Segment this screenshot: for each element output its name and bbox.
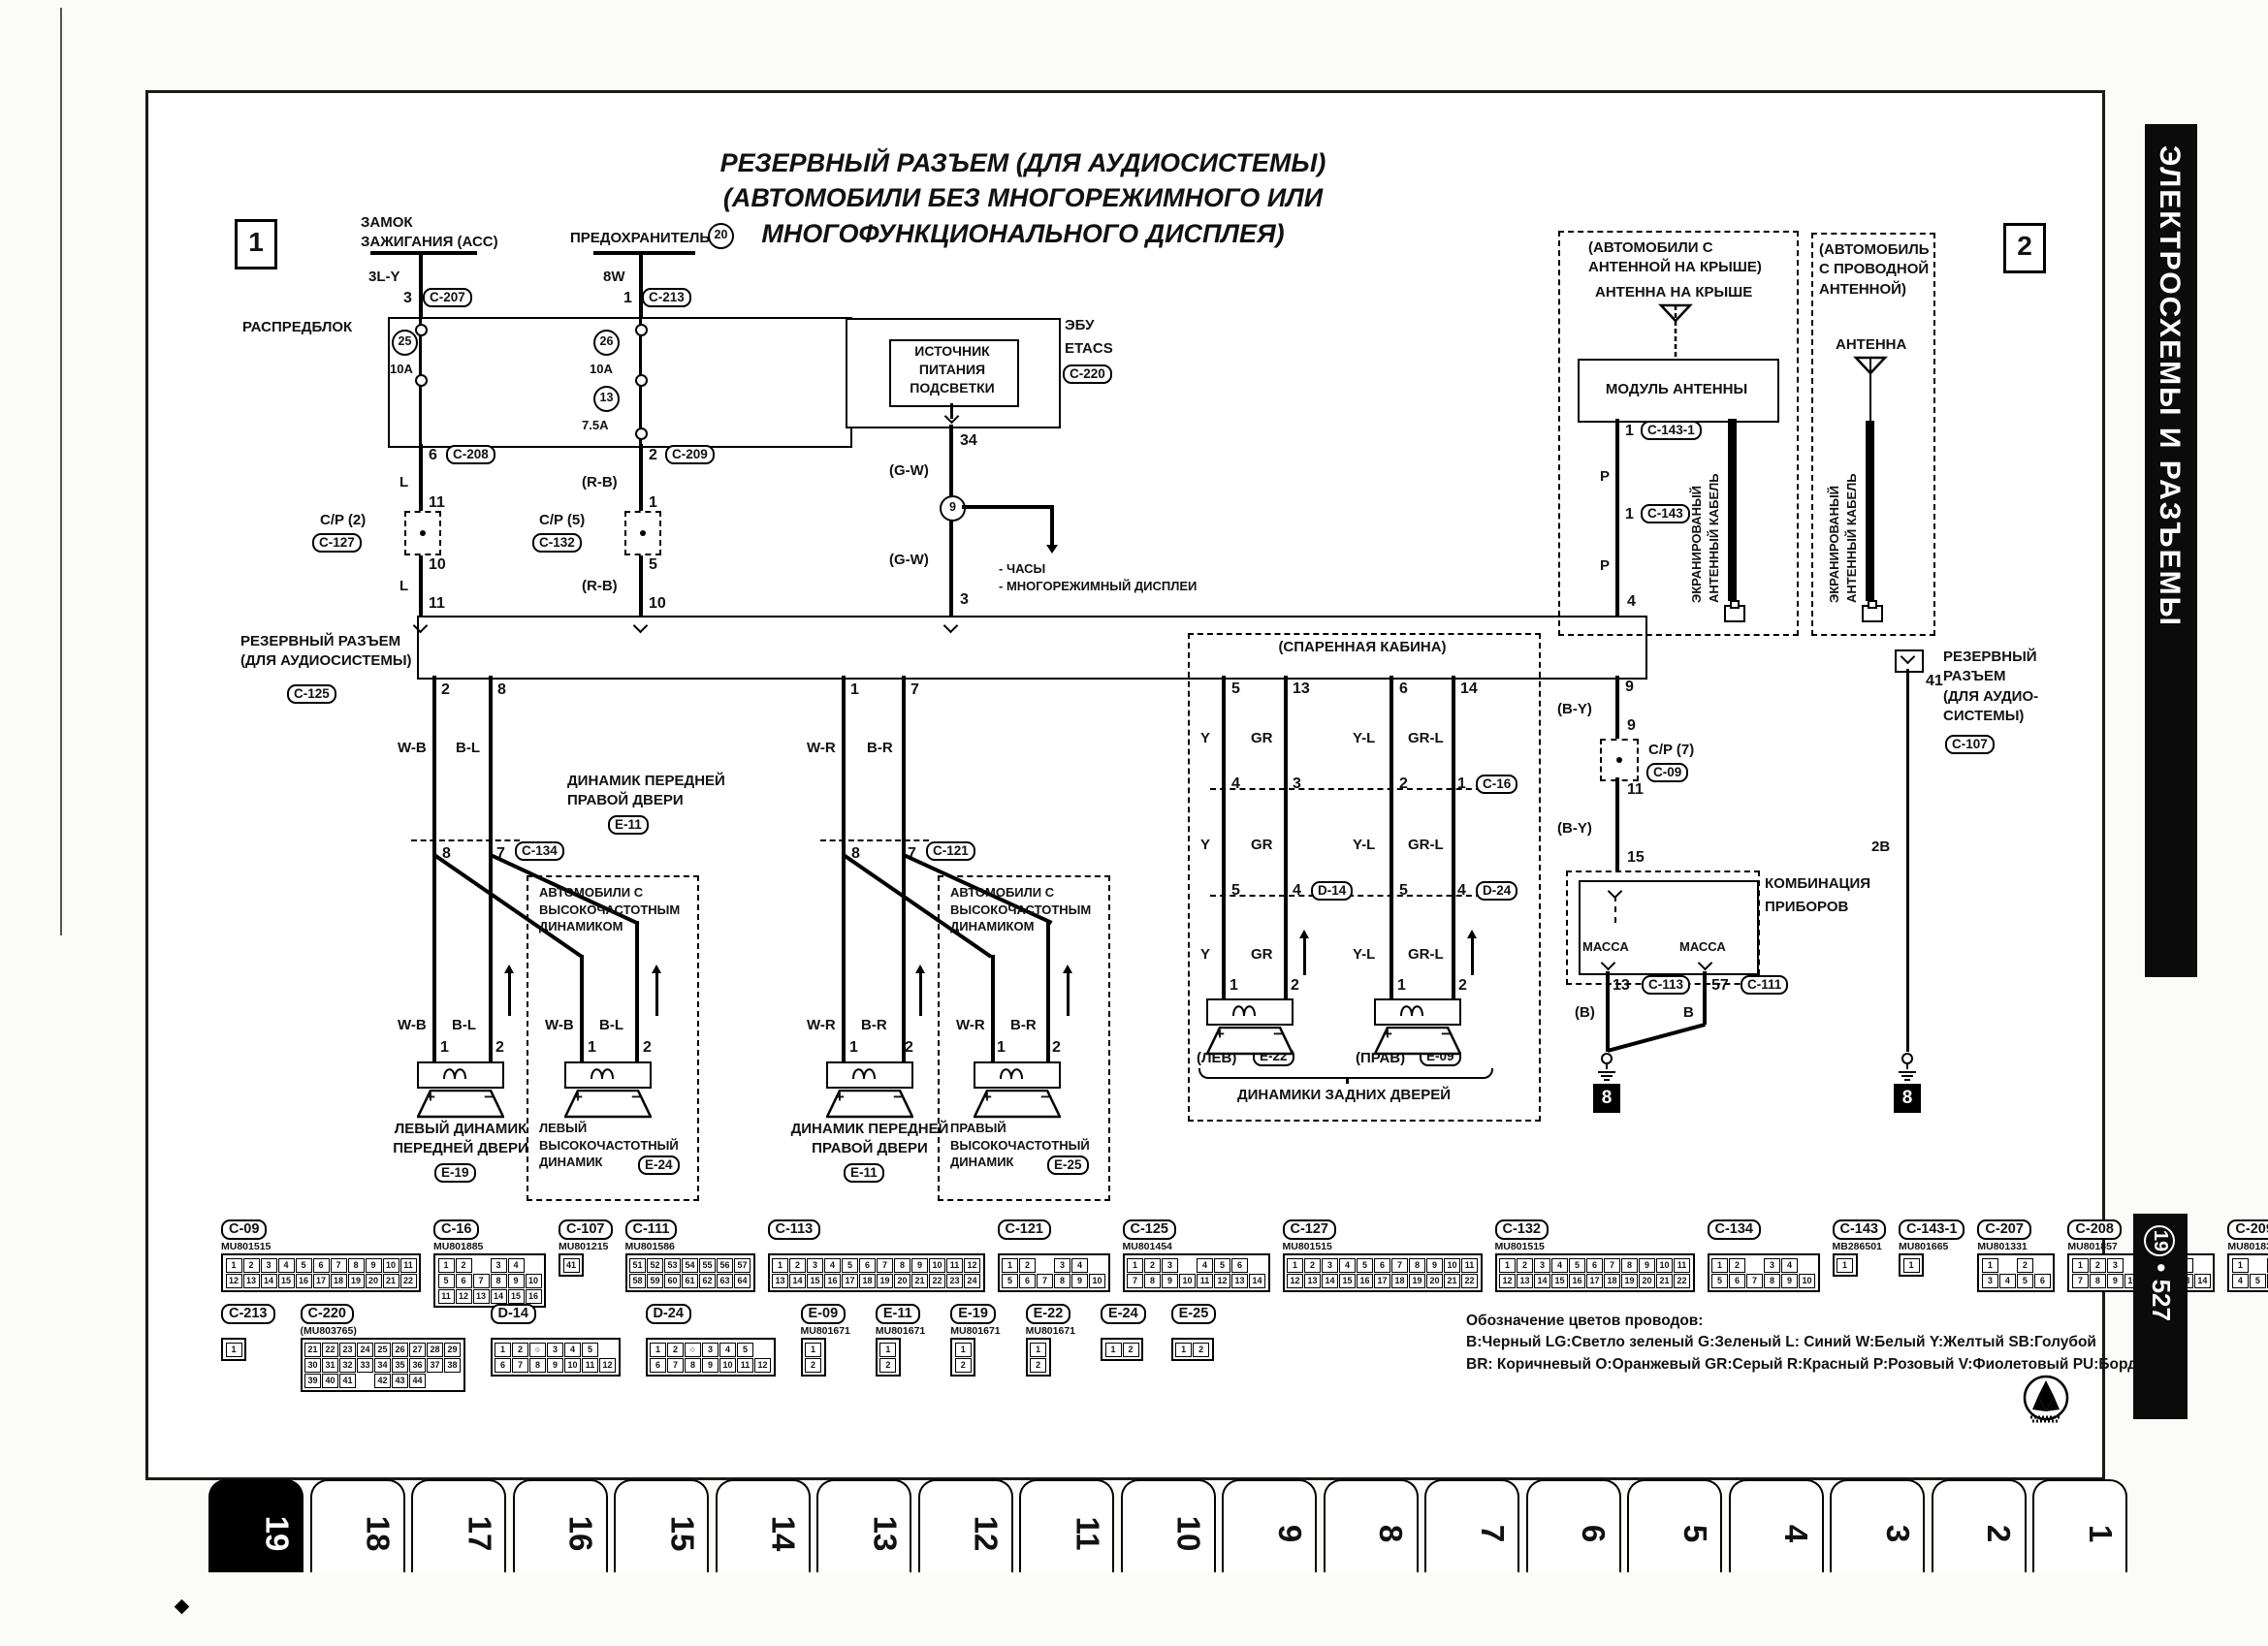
page-tabs-bar: 19181716151413121110987654321 [0, 0, 2268, 1646]
page-tab-11: 11 [1019, 1479, 1114, 1572]
page-tab-13: 13 [816, 1479, 911, 1572]
page-tab-5: 5 [1627, 1479, 1722, 1572]
page-tab-17: 17 [411, 1479, 506, 1572]
page-tab-label: 12 [927, 1516, 1005, 1552]
page-tab-label: 13 [825, 1516, 903, 1552]
page-tab-1: 1 [2032, 1479, 2127, 1572]
page-tab-14: 14 [716, 1479, 811, 1572]
page-tab-18: 18 [310, 1479, 405, 1572]
page-tab-2: 2 [1932, 1479, 2027, 1572]
page-tab-label: 19 [217, 1516, 295, 1552]
page-tab-label: 15 [623, 1516, 700, 1552]
page-tab-label: 6 [1534, 1525, 1612, 1542]
page-tab-4: 4 [1729, 1479, 1824, 1572]
page-tab-label: 16 [522, 1516, 599, 1552]
page-tab-7: 7 [1424, 1479, 1519, 1572]
page-tab-12: 12 [918, 1479, 1013, 1572]
page-tab-6: 6 [1526, 1479, 1621, 1572]
page-tab-label: 8 [1331, 1525, 1409, 1542]
page-tab-label: 9 [1230, 1525, 1308, 1542]
page-tab-15: 15 [614, 1479, 709, 1572]
manual-page: 1 2 РЕЗЕРВНЫЙ РАЗЪЕМ (ДЛЯ АУДИОСИСТЕМЫ) … [0, 0, 2268, 1646]
page-tab-label: 3 [1838, 1525, 1916, 1542]
page-tab-label: 14 [724, 1516, 802, 1552]
page-tab-label: 18 [319, 1516, 397, 1552]
page-tab-3: 3 [1830, 1479, 1925, 1572]
page-tab-19: 19 [208, 1479, 303, 1572]
page-tab-10: 10 [1121, 1479, 1216, 1572]
page-tab-label: 10 [1130, 1516, 1207, 1552]
page-tab-16: 16 [513, 1479, 608, 1572]
page-tab-8: 8 [1324, 1479, 1419, 1572]
page-tab-9: 9 [1222, 1479, 1317, 1572]
page-tab-label: 4 [1737, 1525, 1814, 1542]
page-tab-label: 5 [1636, 1525, 1713, 1542]
page-tab-label: 11 [1028, 1517, 1105, 1551]
page-tab-label: 1 [2041, 1525, 2119, 1542]
page-tab-label: 2 [1939, 1525, 2017, 1542]
page-tab-label: 7 [1433, 1525, 1511, 1542]
page-tab-label: 17 [420, 1516, 497, 1552]
